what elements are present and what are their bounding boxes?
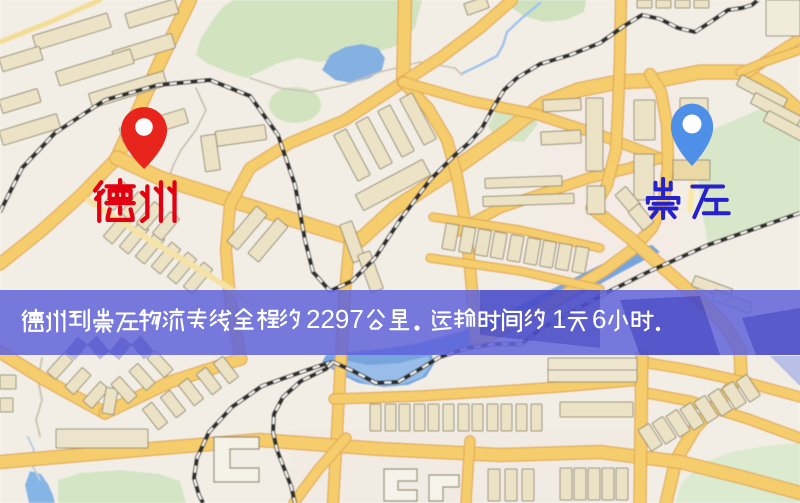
svg-text:1: 1 bbox=[552, 304, 566, 334]
svg-text:2297: 2297 bbox=[306, 304, 364, 334]
svg-text:6: 6 bbox=[592, 304, 606, 334]
